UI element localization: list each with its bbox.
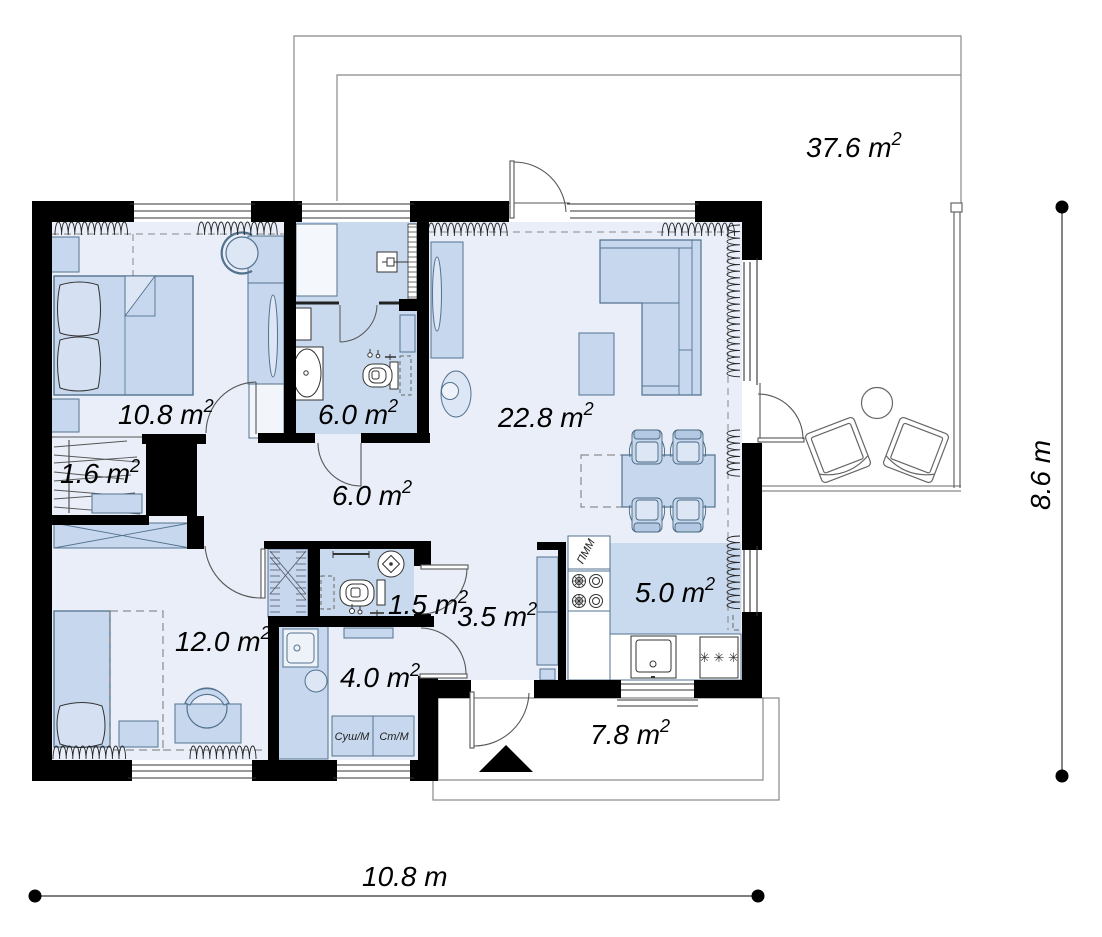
svg-text:✳ ✳ ✳: ✳ ✳ ✳ [699,650,739,665]
svg-text:Ст/М: Ст/М [379,731,409,743]
svg-text:7.8 m2: 7.8 m2 [590,716,670,750]
svg-text:3.5 m2: 3.5 m2 [457,599,537,632]
svg-text:37.6 m2: 37.6 m2 [806,129,902,163]
svg-text:12.0 m2: 12.0 m2 [175,623,271,657]
svg-text:22.8 m2: 22.8 m2 [497,399,594,433]
svg-text:6.0 m2: 6.0 m2 [318,396,398,430]
svg-text:10.8 m2: 10.8 m2 [118,396,214,430]
svg-text:6.0 m2: 6.0 m2 [332,477,412,511]
svg-text:4.0 m2: 4.0 m2 [340,660,420,693]
svg-text:Суш/М: Суш/М [335,731,371,743]
svg-text:8.6 m: 8.6 m [1025,440,1056,510]
svg-text:10.8 m: 10.8 m [362,861,448,892]
svg-text:1.6 m2: 1.6 m2 [60,456,140,489]
svg-text:5.0 m2: 5.0 m2 [635,574,715,608]
